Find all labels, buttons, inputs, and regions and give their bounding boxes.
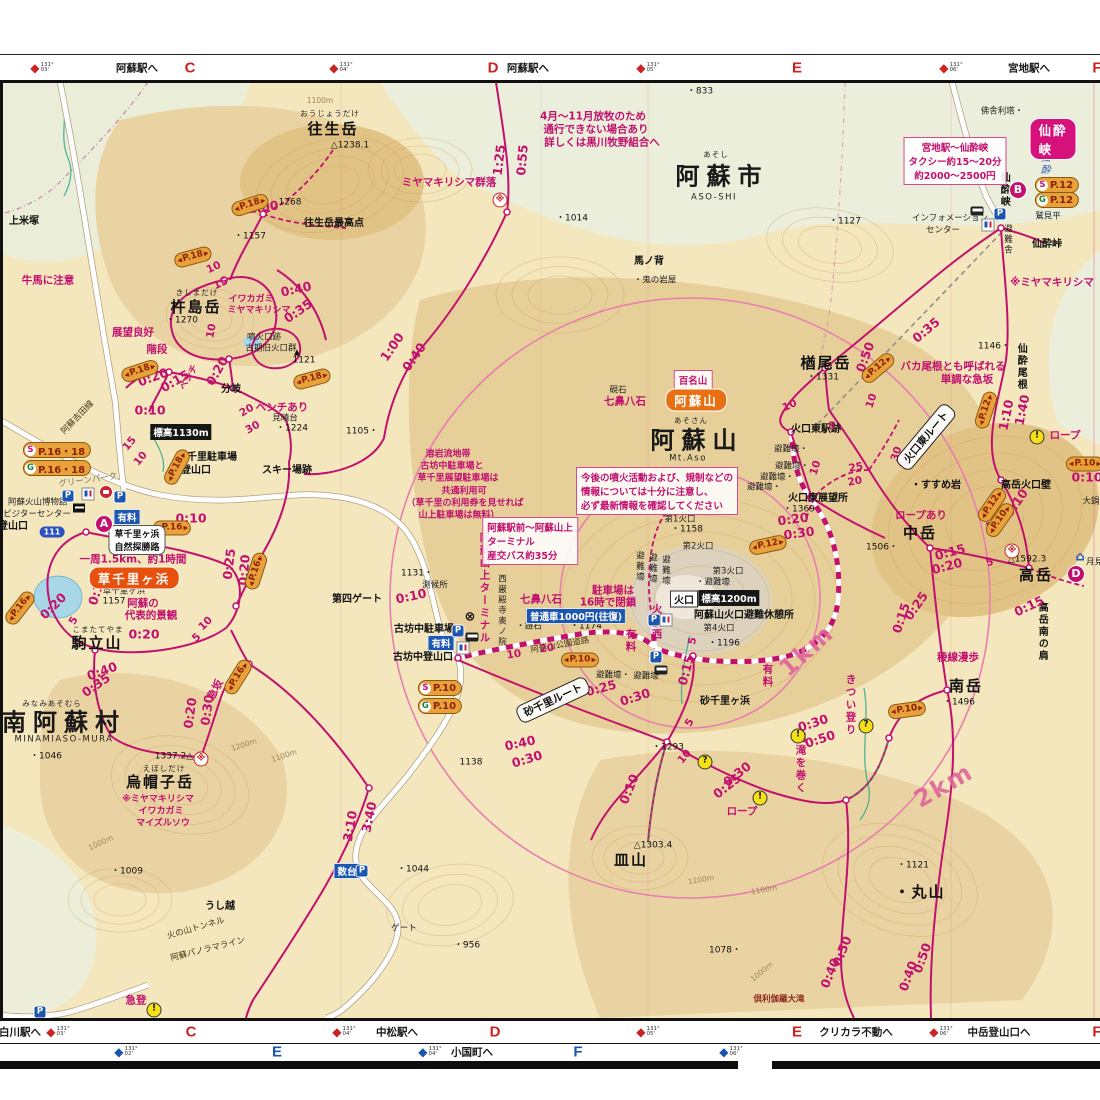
grid-letter: F <box>1092 1024 1100 1041</box>
grid-coordinate: ◆131°02' <box>114 1045 137 1059</box>
grid-coordinate: ◆131°06' <box>939 61 962 75</box>
grid-coordinate: ◆131°03' <box>46 1025 69 1039</box>
edge-destination-label: 白川駅へ <box>0 1025 41 1040</box>
edge-destination-label: 阿蘇駅へ <box>507 61 549 76</box>
grid-coordinate: ◆131°04' <box>332 1025 355 1039</box>
grid-letter: E <box>792 60 802 77</box>
grid-strip-bottom-blue: ◆131°02'E◆131°04'小国町へF◆131°06' <box>0 1044 1100 1061</box>
grid-coordinate: ◆131°03' <box>30 61 53 75</box>
edge-destination-label: 宮地駅へ <box>1008 61 1050 76</box>
grid-strip-top: ◆131°03'阿蘇駅へC◆131°04'D阿蘇駅へ◆131°05'E◆131°… <box>0 54 1100 81</box>
edge-destination-label: 阿蘇駅へ <box>116 61 158 76</box>
sheet-edge-bar-right <box>772 1061 1100 1069</box>
topo-map-canvas <box>0 0 1100 1100</box>
grid-coordinate: ◆131°04' <box>418 1045 441 1059</box>
grid-letter: E <box>792 1024 802 1041</box>
edge-destination-label: 中松駅へ <box>376 1025 418 1040</box>
edge-destination-label: 中岳登山口へ <box>968 1025 1031 1040</box>
grid-coordinate: ◆131°05' <box>636 61 659 75</box>
grid-letter: E <box>272 1044 282 1061</box>
grid-coordinate: ◆131°05' <box>636 1025 659 1039</box>
grid-coordinate: ◆131°06' <box>719 1045 742 1059</box>
grid-coordinate: ◆131°04' <box>329 61 352 75</box>
edge-destination-label: 小国町へ <box>451 1045 493 1060</box>
map-frame-top <box>0 80 1100 83</box>
edge-destination-label: クリカラ不動へ <box>819 1025 893 1040</box>
map-frame-left <box>0 80 3 1021</box>
grid-letter: F <box>573 1044 582 1061</box>
grid-strip-bottom-red: 白川駅へ◆131°03'C◆131°04'中松駅へD◆131°05'Eクリカラ不… <box>0 1021 1100 1043</box>
grid-letter: D <box>488 60 499 77</box>
grid-letter: F <box>1092 60 1100 77</box>
grid-coordinate: ◆131°06' <box>929 1025 952 1039</box>
aso-hiking-map-sheet: 往生岳おうじょうだけ△1238.11100mミヤマキリシマ群落4月〜11月放牧の… <box>0 0 1100 1100</box>
grid-letter: C <box>186 1024 197 1041</box>
grid-letter: D <box>490 1024 501 1041</box>
grid-letter: C <box>185 60 196 77</box>
sheet-edge-bar-left <box>0 1061 738 1069</box>
